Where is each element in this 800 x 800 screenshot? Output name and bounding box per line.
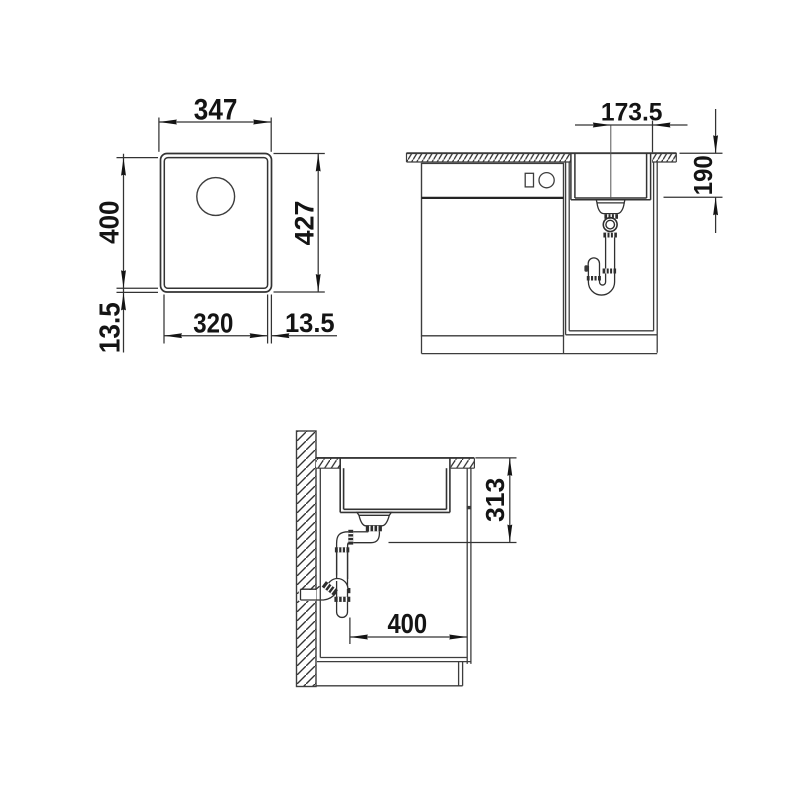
svg-text:173.5: 173.5: [601, 98, 663, 126]
svg-text:347: 347: [194, 94, 238, 127]
svg-text:190: 190: [690, 155, 718, 195]
svg-text:313: 313: [482, 478, 510, 522]
svg-text:13.5: 13.5: [95, 302, 127, 353]
svg-text:320: 320: [193, 307, 233, 338]
svg-text:13.5: 13.5: [285, 308, 335, 338]
svg-text:400: 400: [387, 608, 427, 639]
svg-text:400: 400: [94, 201, 125, 244]
svg-text:427: 427: [289, 201, 319, 246]
